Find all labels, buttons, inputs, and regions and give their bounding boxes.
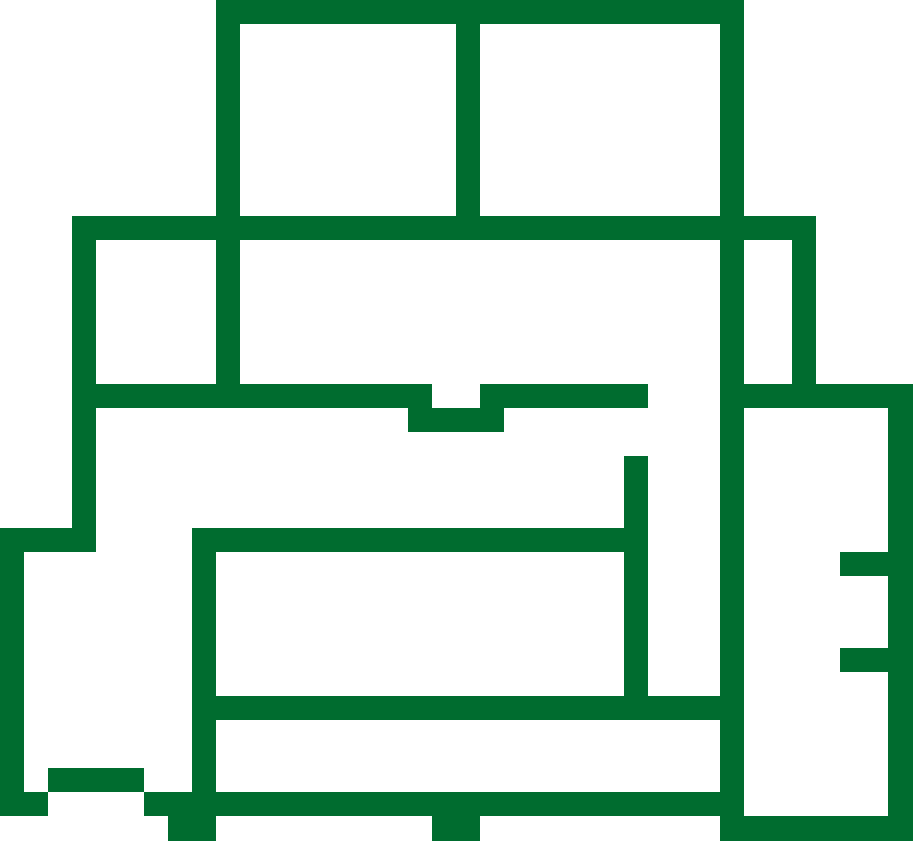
bottom-left-step: [48, 768, 144, 792]
center-right-vertical-wall: [624, 456, 648, 720]
bottom-right-block: [720, 816, 913, 841]
middle-wall-jog: [408, 408, 504, 432]
top-room-divider-wall: [456, 0, 480, 240]
left-step-horizontal-wall: [0, 528, 96, 552]
middle-wall-left-segment: [96, 384, 432, 408]
bottom-middle-leg: [432, 816, 480, 841]
inner-room-top-wall: [192, 528, 648, 552]
upper-horizontal-wall: [72, 216, 816, 240]
right-upper-short-vertical-wall: [792, 240, 816, 384]
middle-wall-right-segment: [480, 384, 648, 408]
lower-horizontal-wall: [144, 792, 744, 816]
inner-room-left-wall: [192, 528, 216, 816]
left-edge-vertical-wall: [0, 552, 24, 816]
floor-plan-canvas: [0, 0, 913, 841]
top-wall: [216, 0, 744, 24]
bottom-left-leg: [168, 816, 216, 841]
left-upper-vertical-wall: [72, 216, 96, 552]
inner-room-bottom-wall: [192, 696, 744, 720]
right-edge-upper-tab: [840, 552, 888, 576]
right-edge-vertical-wall: [888, 408, 913, 841]
middle-wall-far-right-segment: [720, 384, 913, 408]
right-edge-lower-tab: [840, 648, 888, 672]
bottom-left-stub: [0, 792, 48, 816]
upper-left-vertical-wall: [216, 0, 240, 408]
